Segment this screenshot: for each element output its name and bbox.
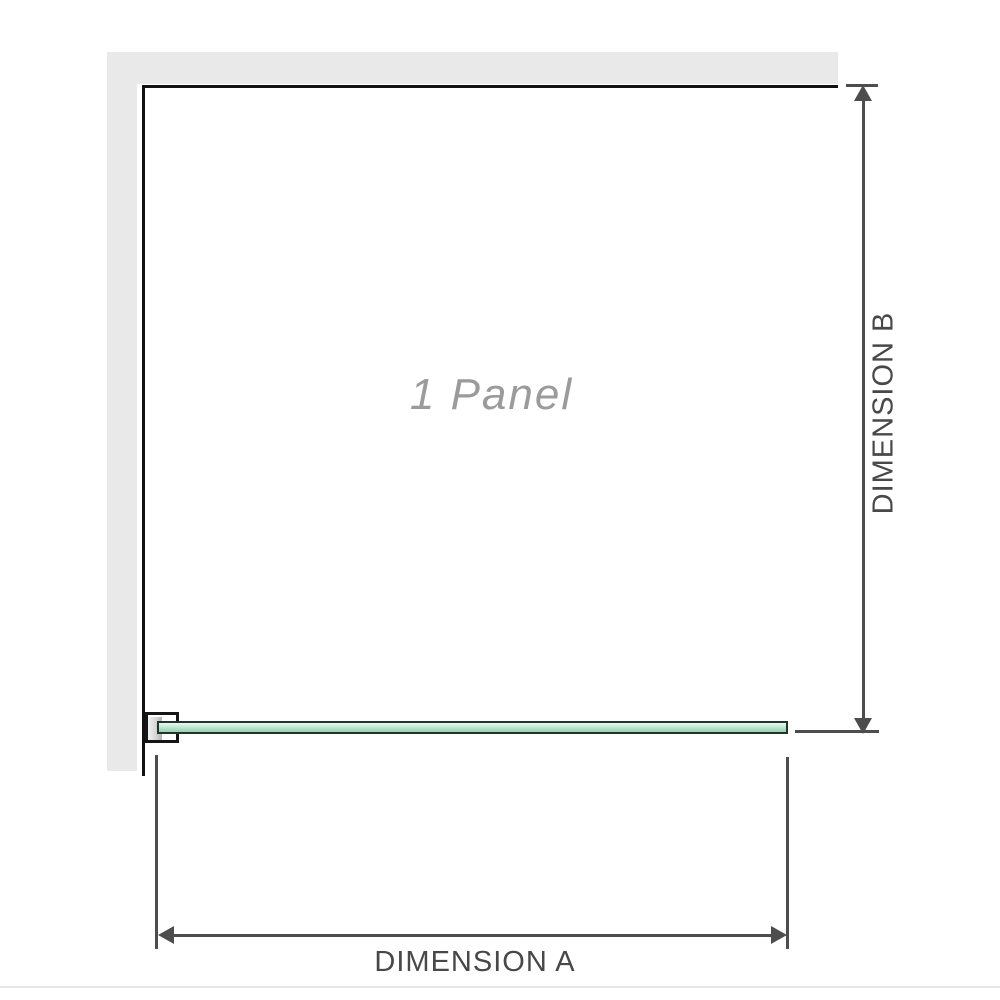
dimension-a-label: DIMENSION A [374,946,575,978]
panel-label-container: 1 Panel [145,370,838,420]
dimension-b-up-arrow-icon [854,85,872,101]
dimension-b-label: DIMENSION B [868,312,901,515]
panel-count-label: 1 Panel [410,370,573,419]
dimension-a-right-arrow-icon [771,926,787,944]
dimension-a-label-container: DIMENSION A [160,946,790,979]
glass-panel [157,721,788,734]
panel-outline-top [142,85,838,88]
dimension-a-left-arrow-icon [158,926,174,944]
wall-top-band [107,52,838,84]
page-divider [0,986,1000,988]
dimension-a-line [170,934,776,937]
dimension-a-left-extension-line [155,755,158,949]
dimension-b-line [862,98,865,720]
dimension-a-right-extension-line [786,757,789,949]
panel-dimension-diagram: 1 Panel DIMENSION B DIMENSION A [0,0,1000,1000]
dimension-b-down-arrow-icon [854,718,872,734]
wall-left-band [107,52,137,771]
panel-outline-left [142,85,145,776]
